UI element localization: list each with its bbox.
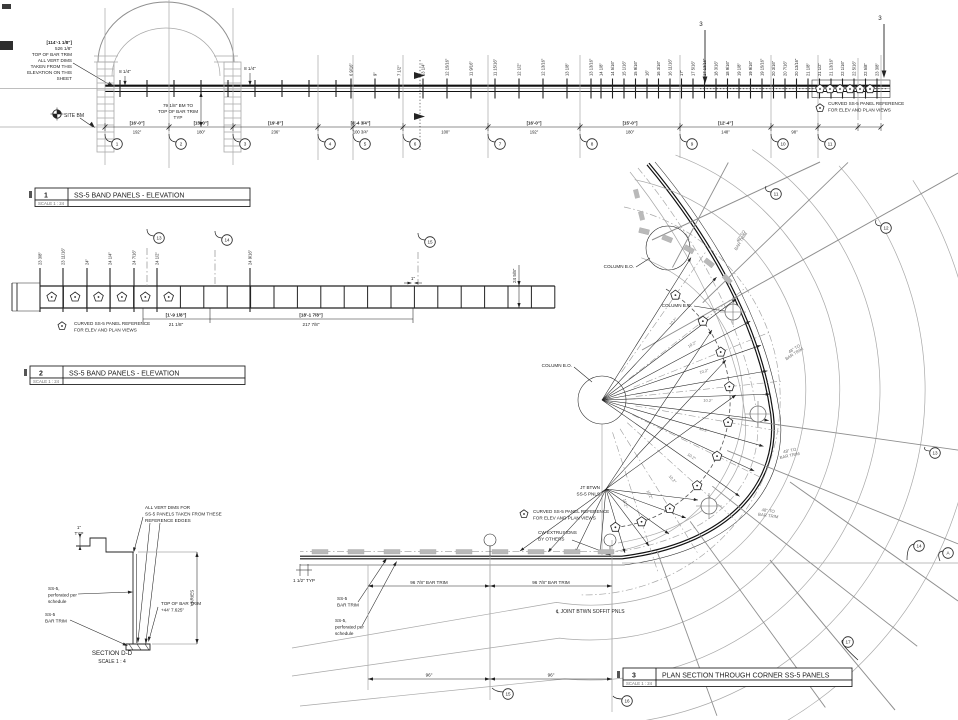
panel-clip <box>456 550 472 555</box>
dim-label: 14 <box>224 238 230 243</box>
column-bo-label: COLUMN B.O. <box>604 264 634 269</box>
dim-label: 1 1/2" TYP <box>293 578 315 583</box>
sheet-mark <box>0 41 13 50</box>
column-circle <box>484 534 496 546</box>
dim-label: 180" <box>626 130 635 135</box>
dim-label: 4 <box>329 142 332 147</box>
note-line: 79 1/8" BM TO <box>163 103 193 108</box>
dim-label: 14 <box>916 544 922 549</box>
dim-label: 13 13/16" <box>589 58 594 76</box>
view-title: PLAN SECTION THROUGH CORNER SS-5 PANELS <box>662 673 830 680</box>
dim-label: 10.2° <box>699 426 710 434</box>
callout-number: 1 <box>44 193 48 200</box>
note-line: REFERENCE EDGES <box>145 518 191 523</box>
dim-label: 20 7/16" <box>783 60 788 76</box>
titleblock-1: 1 SS-5 BAND PANELS - ELEVATION SCALE 1 :… <box>29 188 250 207</box>
dim-label: 23 3/8" <box>38 252 43 265</box>
note-line: ALL VERT DIMS <box>38 58 72 63</box>
cad-canvas: 6 9/16"9"7 1/2"13 1/4"12 15/16"11 9/16"1… <box>0 0 958 720</box>
label: perforated per <box>48 593 77 598</box>
sheet-mark <box>2 4 11 9</box>
titleblock-3: 3 PLAN SECTION THROUGH CORNER SS-5 PANEL… <box>617 668 852 687</box>
dim-label: 10.2° <box>687 339 698 348</box>
dim-label: [1'-9 1/8"] <box>166 313 187 318</box>
dim-label: 13 1/4" <box>421 63 426 76</box>
dim-label: 7 <box>499 142 502 147</box>
dim-label: 1 <box>116 142 119 147</box>
dim-label: 14 1/8" <box>599 63 604 76</box>
dim-label: 236" <box>271 130 280 135</box>
dim-label: 10.2° <box>699 367 710 374</box>
label: +44' 7.625" <box>161 608 184 613</box>
note-line: ELEVATION ON THIS <box>27 70 72 75</box>
dim-label: 22 5/16" <box>852 60 857 76</box>
note-line: TYP <box>174 115 183 120</box>
label: BAR TRIM <box>337 603 359 608</box>
dim-label: [18'-1 7/8"] <box>299 313 323 318</box>
label: perforated per <box>335 625 364 630</box>
dim-label: 23 3/8" <box>875 63 880 76</box>
dim-label: 19 1/8" <box>737 63 742 76</box>
radial-trim-labels: 48" TO BAR TRIM 48" TO BAR TRIM 48" TO B… <box>733 229 804 520</box>
elev1-dim-string: [16'-0"]192"[15'-0"]180"[19'-8"]236"[8'-… <box>103 121 884 135</box>
label: BAR TRIM <box>45 619 67 624</box>
site-benchmark-icon <box>51 108 64 121</box>
note-line: ALL VERT DIMS FOR <box>145 505 191 510</box>
elevation-2 <box>12 265 521 323</box>
dim-label: 24 5/8" <box>512 268 517 283</box>
dim-label: 12 13/16" <box>541 58 546 76</box>
panel-clip <box>384 550 400 555</box>
dim-label: 17" <box>679 69 684 76</box>
dim-label: 11 <box>828 142 833 147</box>
dim-label: 9" <box>373 72 378 76</box>
elev1-panel-ticks: 6 9/16"9"7 1/2"13 1/4"12 15/16"11 9/16"1… <box>120 58 880 98</box>
dim-label: 12 1/2" <box>517 63 522 76</box>
dim-label: [15'-0"] <box>623 121 638 126</box>
dim-label: 148" <box>721 130 730 135</box>
dim-label: 13 <box>156 236 162 241</box>
centerline-note: ℄ JOINT BTWN SOFFIT PNLS <box>555 609 625 615</box>
dim-label: 21 13/16" <box>829 58 834 76</box>
dim-label: 217 7/8" <box>303 322 320 327</box>
panel-clip <box>598 550 614 555</box>
dim-label: 1" <box>411 276 416 281</box>
pentagon-note: CURVED SS-5 PANEL REFERENCE <box>74 321 150 326</box>
label: SS-5 <box>45 612 56 617</box>
panel-clip <box>312 550 328 555</box>
view-title: SECTION D-D <box>92 650 133 657</box>
bm-dim-note: 79 1/8" BM TO TOP OF BAR TRIM TYP <box>158 103 198 120</box>
dim-label: 22 5/8" <box>863 63 868 76</box>
dim-label: [15'-0"] <box>194 121 209 126</box>
dim-label: 23 11/16" <box>61 247 66 265</box>
dim-label: 20 13/16" <box>794 58 799 76</box>
dim-label: [16'-0"] <box>527 121 542 126</box>
dim-label: 14 5/16" <box>610 60 615 76</box>
label: schedule <box>335 631 354 636</box>
drawing-sheet: 6 9/16"9"7 1/2"13 1/4"12 15/16"11 9/16"1… <box>0 0 958 720</box>
note-line: SHEET <box>57 76 73 81</box>
plan-radial-grid <box>613 162 958 715</box>
dim-label: 13 <box>932 451 938 456</box>
view-scale: SCALE 1 : 4 <box>98 659 126 665</box>
dim-label: 16 <box>624 699 630 704</box>
label: TOP OF BAR TRIM <box>161 601 201 606</box>
section-dd <box>70 517 199 650</box>
dim-label: 15 <box>505 692 511 697</box>
pentagon-note: CURVED SS-5 PANEL REFERENCE <box>533 509 609 514</box>
dim-label: 17 <box>845 640 851 645</box>
titleblock-2: 2 SS-5 BAND PANELS - ELEVATION SCALE 1 :… <box>24 366 245 385</box>
dim-label: VARIES <box>190 590 195 607</box>
note-line: SS-5 PANELS TAKEN FROM THESE <box>145 512 222 517</box>
label: BAR TRIM <box>758 512 779 520</box>
dim-label: 96 7/8" BAR TRIM <box>532 580 570 585</box>
dim-label: 11 15/16" <box>493 58 498 76</box>
plan-grid-bubbles: 11121314A151617 <box>492 186 953 706</box>
dim-label: 10.2° <box>668 316 678 327</box>
dim-label: 10.2° <box>622 498 629 509</box>
column-bo-label: COLUMN B.O. <box>662 303 692 308</box>
plan-angle-labels: 10.2°10.2°10.2°10.2°10.2°10.2°10.2°10.2°… <box>622 316 713 509</box>
dim-label: 192" <box>530 130 539 135</box>
dim-label: 19 9/16" <box>748 60 753 76</box>
dim-label: 21 1/8" <box>169 322 184 327</box>
dim-label: 18 3/16" <box>714 60 719 76</box>
dim-label: 100 3/4" <box>353 130 369 135</box>
dim-label: 17 5/16" <box>691 60 696 76</box>
column-circle <box>604 534 616 546</box>
pentagon-note: FOR ELEV AND PLAN VIEWS <box>828 108 891 113</box>
dim-label: 24 7/16" <box>132 249 137 265</box>
callout-number: 3 <box>632 673 636 680</box>
note-line: TAKEN FROM THIS <box>31 64 72 69</box>
dim-label: TYP <box>75 531 84 536</box>
panel-clip <box>492 550 508 555</box>
dim-label: 2 <box>180 142 183 147</box>
dim-label: 13 1/8" <box>565 63 570 76</box>
dim-label: 10.2° <box>686 452 697 462</box>
dim-label: 15 1/16" <box>622 60 627 76</box>
panel-clip <box>638 211 645 221</box>
dim-label: 6 9/16" <box>349 63 354 76</box>
dim-label: 5 <box>364 142 367 147</box>
plan-section <box>292 150 958 720</box>
joint-note: SS-5 PNLS <box>577 492 601 497</box>
dim-label: 12 <box>883 226 889 231</box>
dim-label: 96" <box>426 673 433 678</box>
dim-label: 24" <box>85 258 90 265</box>
dim-label: 17 13/16" <box>702 58 707 76</box>
dim-label: 24 1/4" <box>108 252 113 265</box>
dim-label: 19 15/16" <box>760 58 765 76</box>
panel-clip <box>662 235 673 243</box>
section-cut-label: 3 <box>878 15 882 22</box>
note-line: TOP OF BAR TRIM <box>32 52 72 57</box>
section-cut-label: 3 <box>699 21 703 28</box>
cw-note: BY OTHERS <box>538 537 564 542</box>
dim-label: 18 9/16" <box>725 60 730 76</box>
dim-label: 9 <box>691 142 694 147</box>
dim-label: 8 <box>591 142 594 147</box>
joint-note: JT BTWN <box>580 485 600 490</box>
dim-label: 10.2° <box>668 474 678 485</box>
note-line: TOP OF BAR TRIM <box>158 109 198 114</box>
dim-label: 16" <box>645 69 650 76</box>
view-title: SS-5 BAND PANELS - ELEVATION <box>74 193 184 200</box>
dim-label: 24 1/2" <box>155 252 160 265</box>
dim-label: 192" <box>133 130 142 135</box>
site-bm-label: SITE BM <box>64 113 84 119</box>
panel-clip <box>420 550 436 555</box>
pentagon-note: FOR ELEV AND PLAN VIEWS <box>74 328 137 333</box>
label: SS-5, <box>335 618 347 623</box>
dim-label: 11 <box>774 192 779 197</box>
dim-label: 21 1/8" <box>806 63 811 76</box>
view-scale: SCALE 1 : 24 <box>38 201 65 206</box>
cw-note: CW EXTRUSIONS <box>538 530 577 535</box>
dim-label: 24 9/16" <box>248 249 253 265</box>
dim-label: 96" <box>548 673 555 678</box>
panel-clip <box>564 550 580 555</box>
dim-label: 11 9/16" <box>469 61 474 76</box>
view-title: SS-5 BAND PANELS - ELEVATION <box>69 371 179 378</box>
dim-label: [19'-8"] <box>268 121 283 126</box>
dim-label: 6 <box>414 142 417 147</box>
view-scale: SCALE 1 : 24 <box>33 379 60 384</box>
dim-label: 10 <box>780 142 786 147</box>
dim-label: 20 3/16" <box>771 60 776 76</box>
panel-clip <box>348 550 364 555</box>
column-bo-label: COLUMN B.O. <box>542 363 572 368</box>
panel-clip <box>704 258 715 268</box>
label: SS-5 <box>337 596 348 601</box>
dim-label: 96 7/8" BAR TRIM <box>410 580 448 585</box>
view-scale: SCALE 1 : 24 <box>626 681 653 686</box>
elev1-reference-note: [114'-1 1/8"] 526 1/8" TOP OF BAR TRIM A… <box>27 40 72 81</box>
dim-label: 22 1/16" <box>840 60 845 76</box>
dim-label: 16 3/16" <box>656 60 661 76</box>
panel-clips <box>312 189 732 554</box>
note-line: 526 1/8" <box>55 46 72 51</box>
dim-label: 10.2° <box>646 489 655 500</box>
dim-label: [16'-0"] <box>130 121 145 126</box>
pentagon-note: CURVED SS-5 PANEL REFERENCE <box>828 101 904 106</box>
elev2-panel-ticks: 23 3/8"23 11/16"24"24 1/4"24 7/16"24 1/2… <box>38 247 253 312</box>
panel-clip <box>633 189 640 199</box>
dim-label: [12'-4"] <box>718 121 733 126</box>
dim-label: 21 1/2" <box>817 63 822 76</box>
callout-number: 2 <box>39 371 43 378</box>
dim-label: 8 1/4" <box>119 69 131 74</box>
dim-label: 100" <box>441 130 450 135</box>
elev1-grid-bubbles: 1234567891011 <box>105 134 835 149</box>
dim-label: 7 1/2" <box>397 65 402 76</box>
panel-clip <box>639 228 650 235</box>
dim-label: 15 <box>427 240 433 245</box>
elev2-grid-bubbles: 131415 <box>147 229 435 286</box>
dim-label: 15 9/16" <box>633 60 638 76</box>
plan-pentagons <box>520 290 734 531</box>
dim-label: 16 11/16" <box>668 58 673 76</box>
dim-label: [8'-4 3/4"] <box>351 121 371 126</box>
dim-label: 3 <box>244 142 247 147</box>
label: schedule <box>48 599 67 604</box>
dim-label: 8 1/4" <box>244 66 256 71</box>
dim-label: 180" <box>197 130 206 135</box>
elev1-grid-lines <box>105 0 881 168</box>
dim-label: 10.2° <box>703 398 713 403</box>
note-line: [114'-1 1/8"] <box>47 40 73 45</box>
panel-clip <box>528 550 544 555</box>
pentagon-note: FOR ELEV AND PLAN VIEWS <box>533 516 596 521</box>
dim-label: 98" <box>791 130 798 135</box>
label: SS-5, <box>48 586 60 591</box>
dim-label: 12 15/16" <box>445 58 450 76</box>
dim-label: 1" <box>77 525 82 530</box>
